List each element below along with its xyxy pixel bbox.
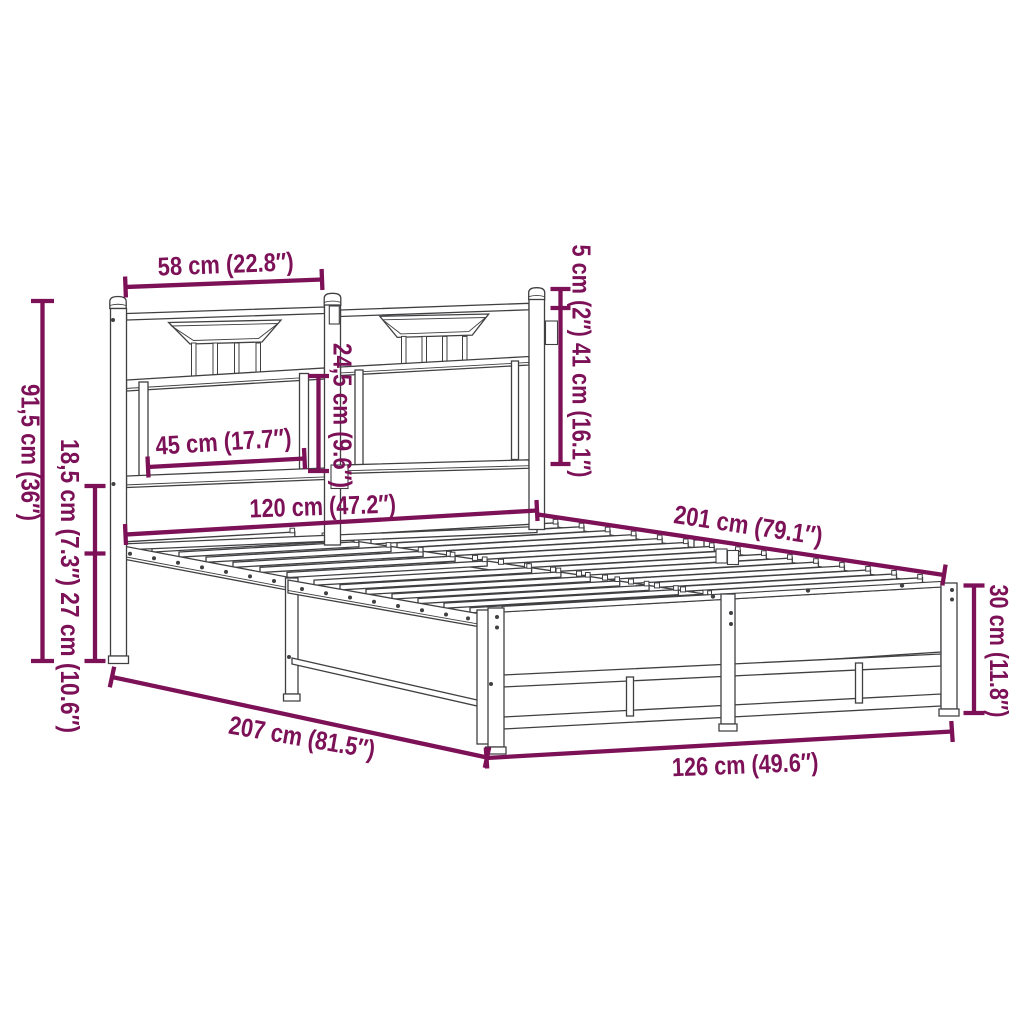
svg-text:24,5 cm (9.6″): 24,5 cm (9.6″) (328, 343, 358, 488)
svg-text:30 cm (11.8″): 30 cm (11.8″) (984, 585, 1014, 718)
svg-text:5 cm (2″) 41 cm (16.1″): 5 cm (2″) 41 cm (16.1″) (567, 245, 597, 478)
svg-text:91,5 cm (36″): 91,5 cm (36″) (16, 384, 46, 521)
svg-text:58 cm (22.8″): 58 cm (22.8″) (157, 246, 294, 281)
svg-text:126 cm (49.6″): 126 cm (49.6″) (671, 747, 819, 783)
svg-text:18,5 cm (7.3″) 27 cm (10.6″): 18,5 cm (7.3″) 27 cm (10.6″) (55, 439, 85, 733)
svg-text:120 cm (47.2″): 120 cm (47.2″) (249, 488, 396, 523)
